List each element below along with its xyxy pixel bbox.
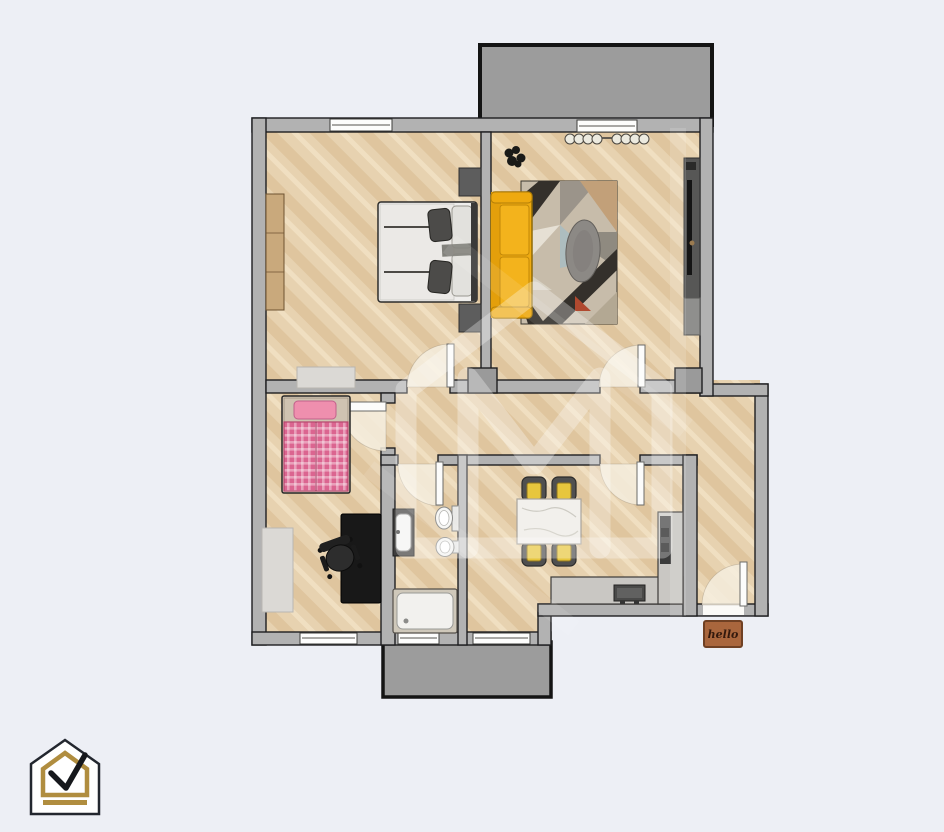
dining-chair: [552, 477, 576, 501]
tv-cabinet: [684, 298, 700, 335]
floorplan-svg: hello: [0, 0, 944, 832]
pink-pillow: [294, 401, 336, 419]
logo-gold-bar: [43, 800, 87, 805]
entry-door-opening: [703, 605, 744, 615]
bathroom-window: [398, 633, 439, 644]
counter-tv: [614, 585, 645, 604]
tv-unit: [684, 158, 700, 335]
single-bed: [282, 396, 350, 493]
door-leaf: [740, 562, 747, 606]
sofa-cushion: [500, 205, 529, 255]
exterior-wall-right-lower: [755, 384, 768, 616]
company-logo: [31, 740, 99, 814]
floorplan-canvas: hello: [0, 0, 944, 832]
door-leaf: [436, 462, 443, 505]
kitchen-window: [473, 633, 530, 644]
living-room-window: [577, 120, 637, 132]
pillow-dark: [427, 208, 452, 242]
wall-bath-top-a: [381, 455, 398, 465]
shower-tray: [393, 589, 457, 633]
bedroom-rug: [297, 367, 355, 388]
exterior-wall-right-upper: [700, 118, 713, 396]
doormat-text: hello: [708, 628, 739, 641]
bedroom-second-rug: [262, 528, 293, 612]
exterior-wall-top: [252, 118, 713, 132]
bedroom-main-window: [330, 119, 392, 131]
wardrobe: [266, 194, 284, 310]
bottom-balcony: [383, 642, 551, 697]
dining-chair: [522, 477, 546, 501]
tv-screen: [687, 180, 692, 275]
door-leaf: [637, 462, 644, 505]
dining-table: [517, 499, 581, 544]
hello-doormat: hello: [704, 621, 742, 647]
nightstand-top: [459, 168, 481, 196]
bedroom-second-window: [300, 633, 357, 644]
top-balcony: [480, 45, 712, 125]
sofa-armrest: [491, 192, 532, 203]
pillow-dark: [427, 260, 452, 294]
